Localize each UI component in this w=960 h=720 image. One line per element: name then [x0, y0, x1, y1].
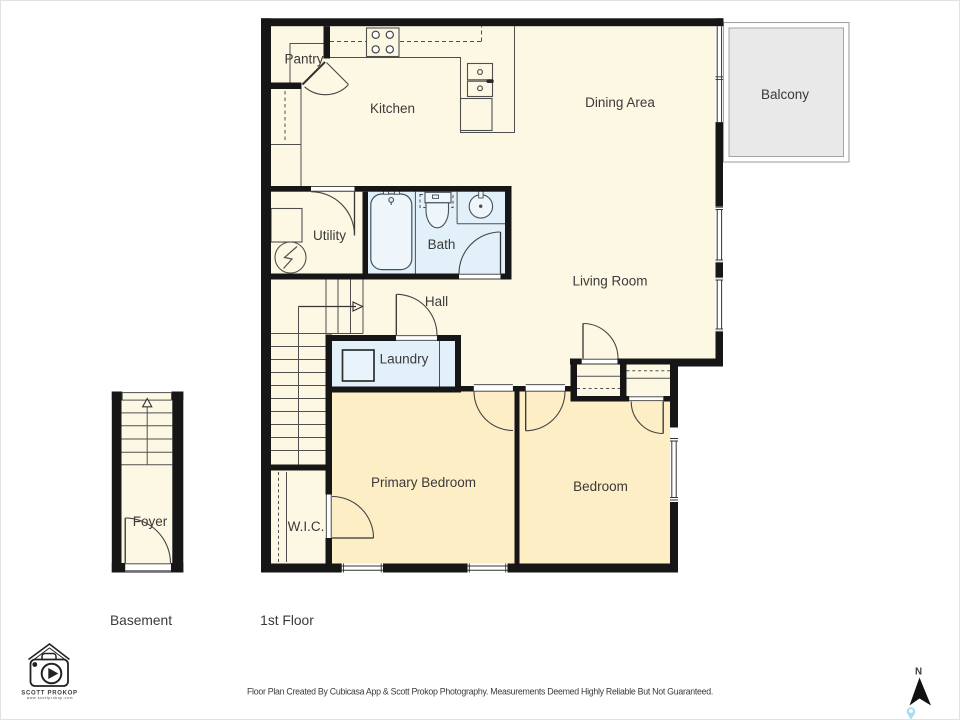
svg-text:www.scottprokop.com: www.scottprokop.com: [27, 696, 73, 700]
svg-text:Primary Bedroom: Primary Bedroom: [371, 475, 476, 490]
svg-text:W.I.C.: W.I.C.: [288, 519, 325, 534]
svg-text:Hall: Hall: [425, 294, 448, 309]
svg-text:Foyer: Foyer: [133, 514, 168, 529]
svg-text:Balcony: Balcony: [761, 87, 809, 102]
svg-text:Living Room: Living Room: [572, 274, 647, 289]
svg-text:Bedroom: Bedroom: [573, 479, 628, 494]
svg-text:Pantry: Pantry: [284, 52, 323, 67]
svg-text:Laundry: Laundry: [380, 352, 429, 367]
svg-text:1st Floor: 1st Floor: [260, 613, 314, 628]
svg-text:Floor Plan Created By Cubicasa: Floor Plan Created By Cubicasa App & Sco…: [247, 687, 713, 697]
svg-text:N: N: [915, 667, 922, 678]
svg-text:Dining Area: Dining Area: [585, 95, 655, 110]
svg-text:Kitchen: Kitchen: [370, 101, 415, 116]
svg-text:Utility: Utility: [313, 228, 346, 243]
svg-text:Bath: Bath: [428, 237, 456, 252]
svg-text:Basement: Basement: [110, 613, 172, 628]
